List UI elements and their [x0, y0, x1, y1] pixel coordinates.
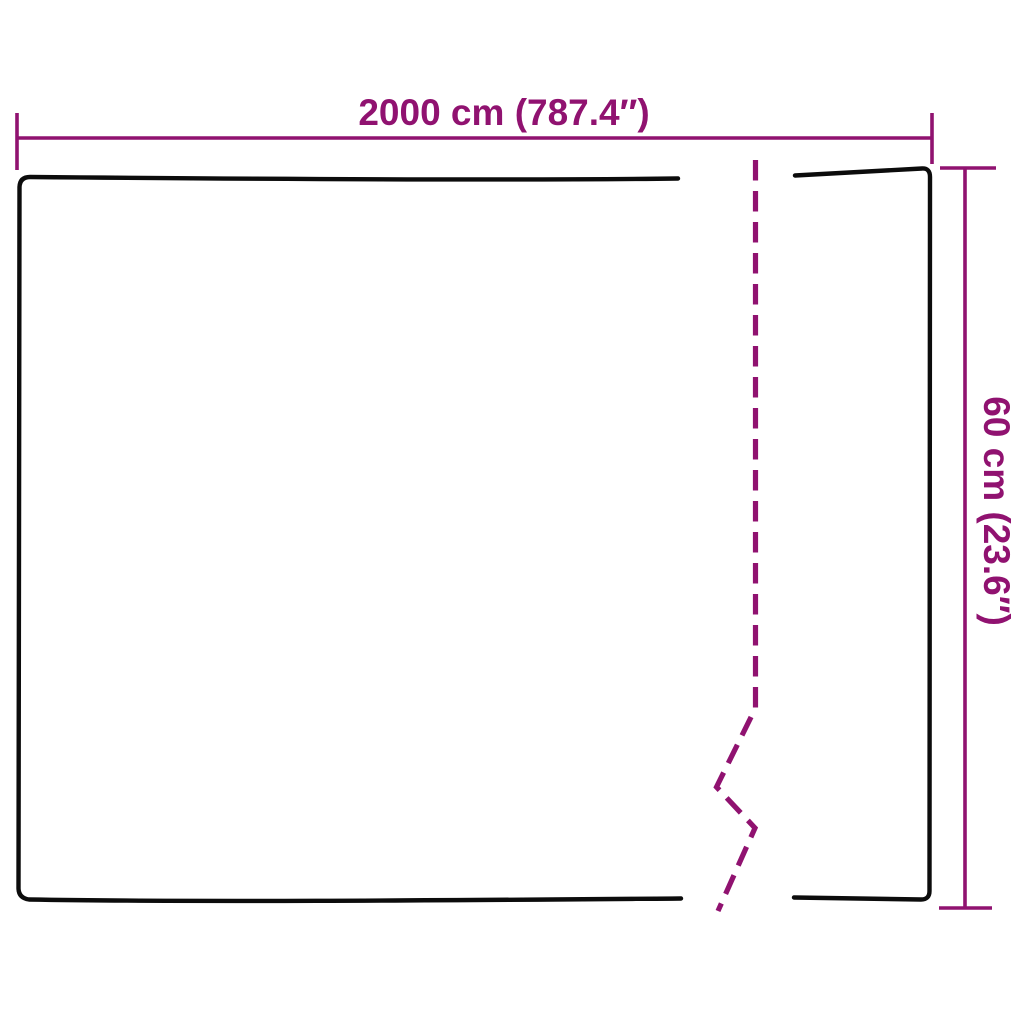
svg-text:2000 cm (787.4″): 2000 cm (787.4″): [358, 92, 649, 133]
svg-text:60 cm (23.6″): 60 cm (23.6″): [976, 396, 1017, 626]
